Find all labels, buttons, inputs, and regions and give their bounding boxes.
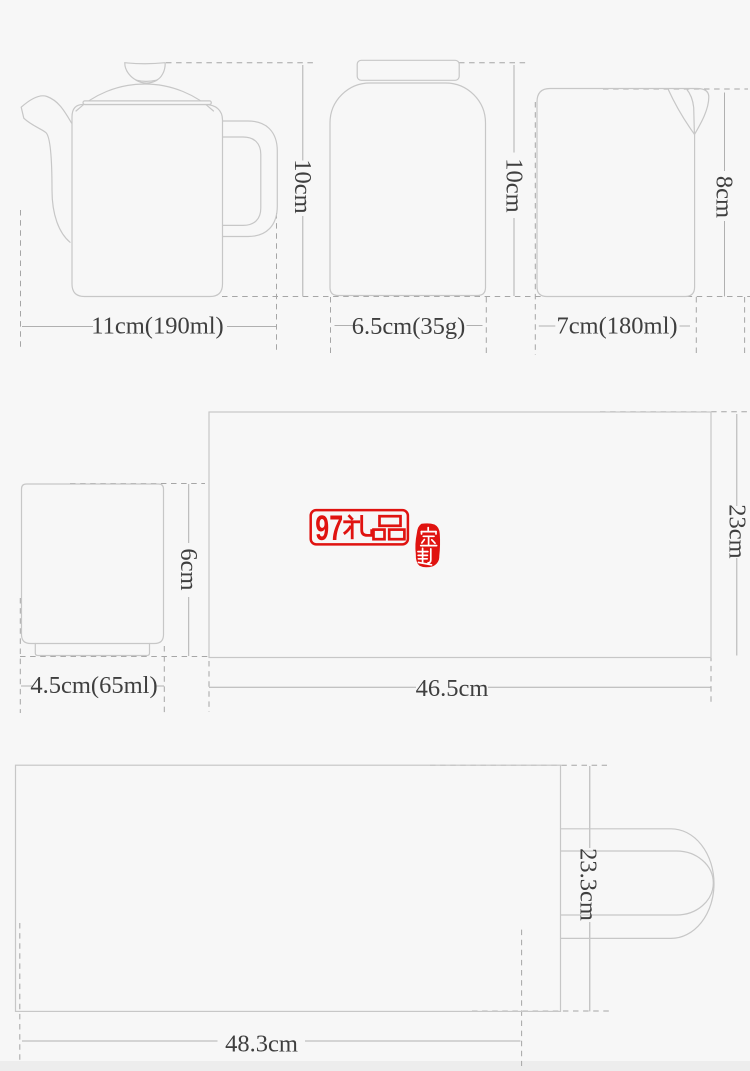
svg-text:6.5cm(35g): 6.5cm(35g) [352, 313, 466, 340]
svg-text:46.5cm: 46.5cm [416, 675, 489, 702]
svg-text:11cm(190ml): 11cm(190ml) [91, 313, 223, 340]
svg-text:4.5cm(65ml): 4.5cm(65ml) [30, 672, 157, 699]
svg-text:7cm(180ml): 7cm(180ml) [556, 313, 677, 340]
svg-text:6cm: 6cm [175, 548, 202, 590]
svg-text:10cm: 10cm [289, 159, 316, 213]
svg-text:48.3cm: 48.3cm [225, 1031, 298, 1058]
svg-text:23cm: 23cm [723, 504, 750, 558]
svg-text:8cm: 8cm [711, 176, 738, 218]
svg-text:97: 97 [315, 509, 343, 548]
svg-text:23.3cm: 23.3cm [575, 848, 602, 921]
svg-text:10cm: 10cm [501, 158, 528, 212]
